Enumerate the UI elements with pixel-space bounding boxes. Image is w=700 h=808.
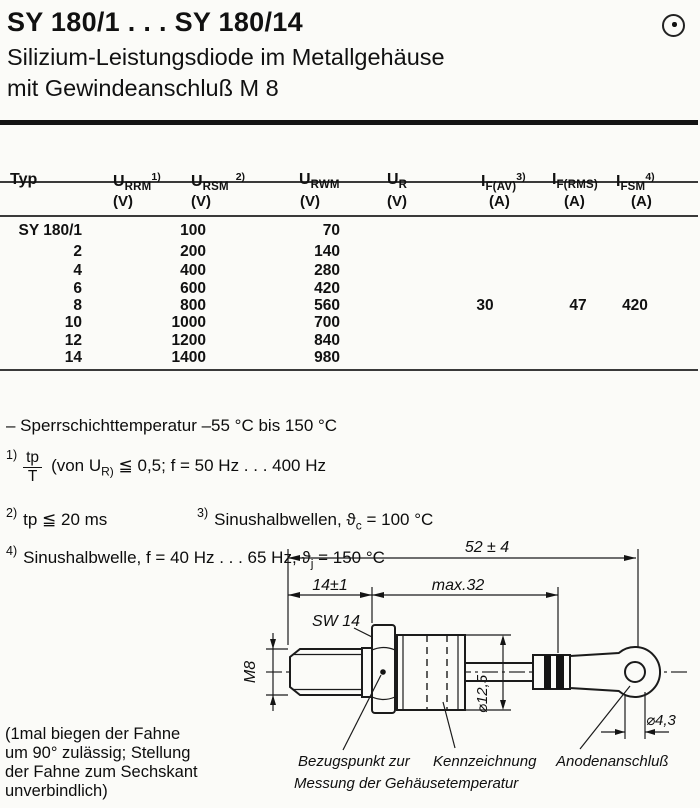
dim-body-text: max.32 (432, 577, 485, 594)
crimp-sleeve (533, 655, 570, 689)
col-header-urwm: URWM (299, 171, 340, 191)
col-header-ifav: IF(AV)3) (481, 171, 526, 193)
col-header-ifrms: IF(RMS) (552, 171, 598, 191)
reference-point-caption-line1: Bezugspunkt zur (298, 753, 411, 770)
anode-hole (625, 662, 645, 682)
cell-ifav: 30 (455, 297, 515, 315)
footnote-3: 3)Sinushalbwellen, ϑc = 100 °C (197, 506, 433, 532)
cell-urrm: 200 (120, 243, 206, 261)
cell-urrm: 1000 (120, 314, 206, 332)
table-header-rule (0, 215, 698, 217)
cell-typ: 12 (6, 332, 82, 350)
footnote-2: 2)tp ≦ 20 ms (6, 506, 107, 530)
circled-dot-icon (662, 14, 685, 37)
col-header-ur: UR (387, 171, 407, 191)
footnote-1-text: (von UR) ≦ 0,5; f = 50 Hz . . . 400 Hz (51, 456, 326, 478)
cell-typ: 4 (6, 262, 82, 280)
table-row: 141400980 (0, 349, 700, 368)
threaded-stud (290, 649, 362, 695)
cell-ifrms: 47 (549, 297, 607, 315)
footnote-1: 1) tpT (von UR) ≦ 0,5; f = 50 Hz . . . 4… (6, 446, 326, 488)
page-subtitle-line2: mit Gewindeanschluß M 8 (7, 75, 279, 102)
cell-typ: 8 (6, 297, 82, 315)
anode-flag-lug (570, 647, 660, 697)
anode-caption: Anodenanschluß (555, 753, 669, 770)
cell-urwm: 140 (254, 243, 340, 261)
cell-urrm: 800 (120, 297, 206, 315)
col-header-typ: Typ (10, 171, 37, 189)
hex-nut (372, 625, 395, 713)
cell-typ: 6 (6, 280, 82, 298)
page-subtitle-line1: Silizium-Leistungsdiode im Metallgehäuse (7, 44, 445, 71)
dimension-hole-diameter: ⌀4,3 (601, 692, 677, 739)
footnote-2-marker: 2) (6, 506, 17, 520)
datasheet-page: SY 180/1 . . . SY 180/14 Silizium-Leistu… (0, 0, 700, 808)
cell-ifsm: 420 (606, 297, 664, 315)
outline-drawing: 52 ± 4 14±1 max.32 SW 14 (240, 535, 700, 808)
col-header-ifsm: IFSM4) (616, 171, 655, 193)
cell-typ: 14 (6, 349, 82, 367)
table-row: SY 180/110070 (0, 222, 700, 241)
cell-urwm: 980 (254, 349, 340, 367)
cell-urwm: 280 (254, 262, 340, 280)
cell-urrm: 400 (120, 262, 206, 280)
table-row: 101000700 (0, 314, 700, 333)
dim-overall-text: 52 ± 4 (465, 539, 509, 556)
cell-urwm: 840 (254, 332, 340, 350)
cell-urrm: 600 (120, 280, 206, 298)
tp-over-t-fraction: tpT (23, 449, 42, 485)
col-unit-urrm: (V) (113, 193, 133, 210)
cell-urrm: 1200 (120, 332, 206, 350)
cell-urrm: 1400 (120, 349, 206, 367)
thread-size-label: M8 (242, 661, 259, 683)
col-unit-ifsm: (A) (631, 193, 652, 210)
col-header-ursm: URSM2) (191, 171, 245, 193)
cell-typ: 2 (6, 243, 82, 261)
cell-urwm: 560 (254, 297, 340, 315)
marking-caption: Kennzeichnung (433, 753, 537, 770)
footnote-3-marker: 3) (197, 506, 208, 520)
col-unit-ur: (V) (387, 193, 407, 210)
cell-typ: 10 (6, 314, 82, 332)
col-unit-ifav: (A) (489, 193, 510, 210)
dot-icon (672, 22, 677, 27)
page-title: SY 180/1 . . . SY 180/14 (7, 7, 303, 38)
table-bottom-rule (0, 369, 698, 371)
flag-bending-note: (1mal biegen der Fahne um 90° zulässig; … (5, 725, 198, 801)
hole-diameter-label: ⌀4,3 (646, 712, 677, 729)
col-unit-urwm: (V) (300, 193, 320, 210)
title-divider (0, 120, 698, 125)
cell-urwm: 70 (254, 222, 340, 240)
footnote-1-marker: 1) (6, 448, 17, 462)
dimension-body-diameter: ⌀12,5 (465, 635, 511, 713)
cell-urwm: 700 (254, 314, 340, 332)
collar (362, 648, 372, 697)
footnote-4-marker: 4) (6, 544, 17, 558)
col-unit-ursm: (V) (191, 193, 211, 210)
table-row: 2200140 (0, 243, 700, 262)
dim-stud-text: 14±1 (312, 577, 347, 594)
col-unit-ifrms: (A) (564, 193, 585, 210)
case-body (397, 635, 465, 710)
cell-typ: SY 180/1 (6, 222, 82, 240)
table-row: 4400280 (0, 262, 700, 281)
reference-point-caption-line2: Messung der Gehäusetemperatur (294, 775, 519, 792)
anode-leader-line (580, 686, 630, 749)
cell-urwm: 420 (254, 280, 340, 298)
col-header-urrm: URRM1) (113, 171, 161, 193)
case-temperature-reference-dot (380, 669, 386, 675)
wrench-size-label: SW 14 (312, 613, 360, 630)
cell-urrm: 100 (120, 222, 206, 240)
junction-temperature-note: – Sperrschichttemperatur –55 °C bis 150 … (6, 416, 337, 436)
